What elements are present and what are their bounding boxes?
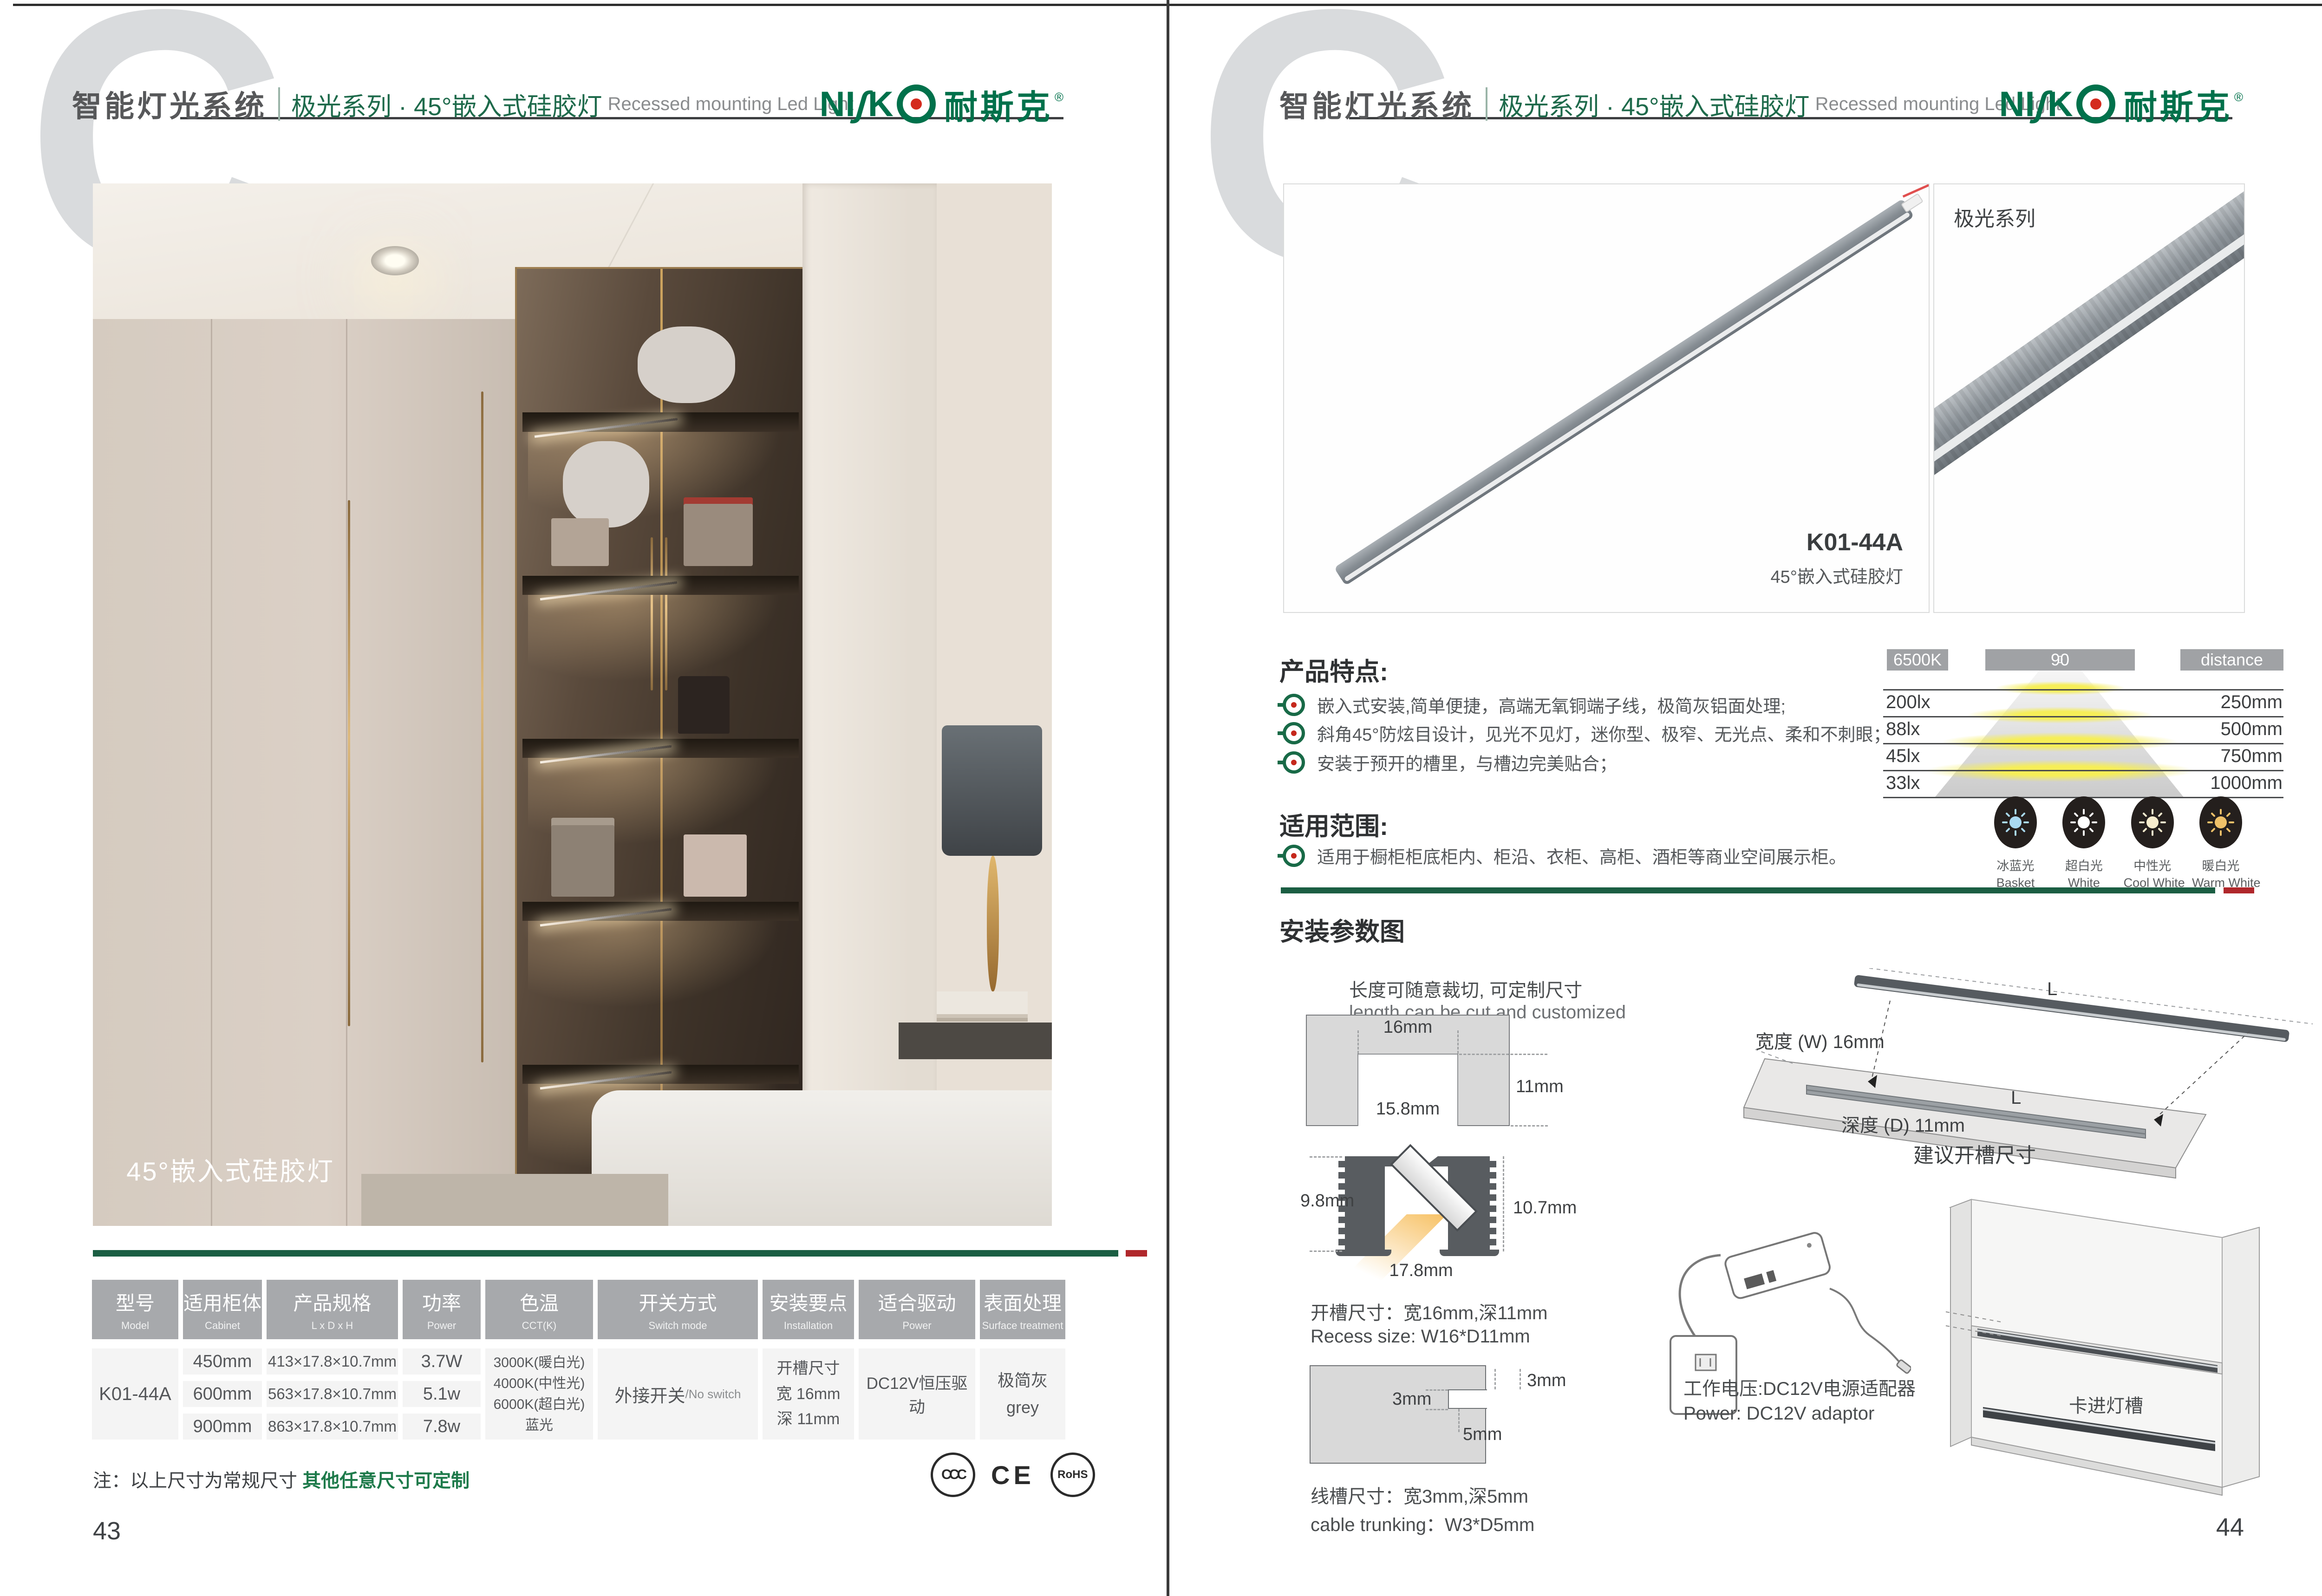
scope-item: 适用于橱柜柜底柜内、柜沿、衣柜、高柜、酒柜等商业空间展示柜。 bbox=[1283, 843, 1846, 868]
photo-gold-handle bbox=[481, 391, 483, 1062]
photo-bench bbox=[361, 1174, 668, 1226]
trunking-size-en: cable trunking：W3*D5mm bbox=[1311, 1510, 1534, 1537]
th-cn: 产品规格 bbox=[293, 1288, 371, 1316]
trunking-size-cn: 线槽尺寸：宽3mm,深5mm bbox=[1311, 1481, 1528, 1508]
photo-lamp-stem bbox=[987, 856, 999, 991]
dim-line bbox=[1458, 1409, 1460, 1432]
cct-swatches: 冰蓝光 Basket 超白光 White bbox=[1987, 796, 2250, 890]
photo-pillow bbox=[563, 441, 649, 528]
table-header-power: 功率Power bbox=[403, 1280, 481, 1339]
swatch-label-en: Cool White bbox=[2124, 876, 2181, 890]
scope-text: 适用于橱柜柜底柜内、柜沿、衣柜、高柜、酒柜等商业空间展示柜。 bbox=[1317, 843, 1846, 868]
photo-nightstand bbox=[899, 1023, 1052, 1059]
bullet-dot bbox=[1291, 760, 1297, 765]
board-depth-label: 深度 (D) 11mm bbox=[1841, 1115, 1965, 1136]
page-title-system: 智能灯光系统 bbox=[72, 83, 267, 125]
photo-glass-cabinet bbox=[515, 267, 807, 1226]
series-tag: 极光系列 bbox=[1954, 202, 2035, 232]
feature-item: 嵌入式安装,简单便捷，高端无氧铜端子线，极简灰铝面处理; bbox=[1283, 692, 1786, 717]
chart-line bbox=[1883, 716, 2283, 717]
page-gutter-line bbox=[1167, 0, 1169, 1596]
chart-line bbox=[1883, 689, 2283, 691]
groove-section-diagram: 16mm 11mm 15.8mm bbox=[1306, 1015, 1566, 1131]
product-panel-main: K01-44A 45°嵌入式硅胶灯 bbox=[1283, 183, 1930, 613]
light-pool bbox=[1942, 732, 2179, 752]
logo-ni: NI bbox=[820, 84, 856, 124]
switch-en: /No switch bbox=[685, 1387, 741, 1401]
cell-cabinet: 900mm bbox=[183, 1414, 262, 1440]
lux-label: 45lx bbox=[1886, 746, 1920, 767]
inst-line: 深 11mm bbox=[777, 1407, 840, 1432]
logo-ni: NI bbox=[1999, 84, 2035, 124]
light-distance-chart: 6500K 900 distance 200lx 88lx 45lx 33lx … bbox=[1883, 649, 2283, 802]
lux-label: 200lx bbox=[1886, 692, 1931, 713]
distance-label: 250mm bbox=[2221, 692, 2283, 713]
distance-label: 1000mm bbox=[2210, 773, 2283, 794]
bullet-icon bbox=[1283, 751, 1305, 774]
cell-power-col: 3.7W 5.1w 7.8w bbox=[403, 1348, 481, 1440]
dim-line bbox=[1459, 1054, 1547, 1055]
cell-spec: 863×17.8×10.7mm bbox=[267, 1414, 398, 1440]
photo-shelf-glow bbox=[528, 921, 793, 1007]
feature-text: 安装于预开的槽里，与槽边完美贴合； bbox=[1317, 749, 1617, 775]
note-prefix: 注：以上尺寸为常规尺寸 bbox=[93, 1471, 302, 1491]
table-header-cabinet: 适用柜体Cabinet bbox=[183, 1280, 262, 1339]
cct-line: 4000K(中性光) bbox=[494, 1373, 585, 1394]
ce-mark-icon: CE bbox=[991, 1460, 1035, 1490]
bullet-icon bbox=[1283, 694, 1305, 716]
led-bar-above-board bbox=[1854, 975, 2290, 1042]
photo-door-seam bbox=[211, 319, 212, 1226]
swatch-label-en: White bbox=[2055, 876, 2113, 890]
cct-line: 6000K(超白光) bbox=[494, 1394, 585, 1415]
inst-line: 开槽尺寸 bbox=[777, 1356, 840, 1381]
swatch-label-en: Basket bbox=[1987, 876, 2044, 890]
led-profile-closeup bbox=[1933, 183, 2245, 513]
photo-caption: 45°嵌入式硅胶灯 bbox=[126, 1151, 334, 1188]
profile-foot bbox=[1336, 1250, 1391, 1256]
swatch-label-en: Warm White bbox=[2192, 876, 2250, 890]
cut-note-cn: 长度可随意裁切, 可定制尺寸 bbox=[1349, 975, 1582, 1002]
swatch-oval bbox=[1994, 796, 2037, 848]
wall-plug bbox=[1696, 1355, 1716, 1370]
photo-wardrobe-doors bbox=[93, 319, 515, 1226]
surface-en: grey bbox=[1006, 1394, 1039, 1421]
th-en: Power bbox=[902, 1320, 931, 1332]
title-separator bbox=[278, 87, 280, 121]
cell-cct: 3000K(暖白光) 4000K(中性光) 6000K(超白光) 蓝光 bbox=[485, 1348, 593, 1440]
bar-length-label: L bbox=[2047, 979, 2057, 999]
angle-sup: 0 bbox=[2057, 654, 2063, 666]
cell-cabinet: 600mm bbox=[183, 1381, 262, 1407]
th-en: Surface treatment bbox=[982, 1320, 1063, 1332]
nisko-logo: NIʃK 耐斯克 ® bbox=[1999, 78, 2243, 130]
cell-spec: 413×17.8×10.7mm bbox=[267, 1348, 398, 1375]
th-cn: 适合驱动 bbox=[878, 1288, 956, 1316]
product-panel-closeup: 极光系列 bbox=[1933, 183, 2245, 613]
page-title-system: 智能灯光系统 bbox=[1279, 83, 1474, 125]
ccc-mark-icon: CCC bbox=[931, 1453, 975, 1497]
chart-header-cct: 6500K bbox=[1887, 649, 1948, 671]
sun-icon bbox=[2070, 809, 2097, 836]
distance-label: 500mm bbox=[2221, 719, 2283, 740]
photo-lamp-shade bbox=[942, 725, 1043, 856]
profile-teeth bbox=[1490, 1161, 1496, 1249]
groove-length-label: L bbox=[2011, 1088, 2021, 1108]
cell-spec: 563×17.8×10.7mm bbox=[267, 1381, 398, 1407]
dim-right-height: 10.7mm bbox=[1513, 1198, 1577, 1218]
registered-mark: ® bbox=[2234, 90, 2243, 104]
surface-cn: 极简灰 bbox=[998, 1367, 1048, 1394]
table-header-switch: 开关方式Switch mode bbox=[598, 1280, 758, 1339]
cell-driver: DC12V恒压驱动 bbox=[859, 1348, 975, 1440]
th-en: Installation bbox=[784, 1320, 833, 1332]
photo-folded-clothes bbox=[684, 834, 747, 897]
board-groove-diagram: L 宽度 (W) 16mm L 深度 (D) 11mm 建议开槽尺寸 bbox=[1737, 968, 2322, 1186]
table-header-spec: 产品规格L x D x H bbox=[267, 1280, 398, 1339]
swatch-oval bbox=[2131, 796, 2174, 848]
swatch-label-cn: 冰蓝光 bbox=[1987, 856, 2044, 874]
bullet-dot bbox=[1291, 702, 1297, 708]
board-width-label: 宽度 (W) 16mm bbox=[1755, 1032, 1885, 1052]
lux-label: 88lx bbox=[1886, 719, 1920, 740]
th-en: CCT(K) bbox=[522, 1320, 557, 1332]
registered-mark: ® bbox=[1055, 90, 1063, 104]
trunk-slot bbox=[1448, 1389, 1487, 1409]
header-left-page: 智能灯光系统 极光系列 · 45°嵌入式硅胶灯 Recessed mountin… bbox=[72, 78, 1063, 130]
feature-item: 斜角45°防炫目设计，见光不见灯，迷你型、极窄、无光点、柔和不刺眼； bbox=[1283, 720, 1891, 746]
certification-marks: CCC CE RoHS bbox=[931, 1453, 1095, 1497]
product-model: K01-44A bbox=[1807, 528, 1903, 556]
dim-slot-width: 3mm bbox=[1527, 1371, 1566, 1391]
divider-left-green bbox=[93, 1250, 1118, 1257]
guide-line bbox=[2157, 1031, 2250, 1117]
dim-line bbox=[1310, 1251, 1342, 1252]
swatch-oval bbox=[2199, 796, 2242, 848]
table-header-model: 型号Model bbox=[92, 1280, 178, 1339]
th-en: Power bbox=[427, 1320, 456, 1332]
dim-top-width: 16mm bbox=[1357, 1017, 1458, 1037]
page-title-series: 极光系列 · 45°嵌入式硅胶灯 bbox=[291, 86, 602, 123]
nisko-logo-cn: 耐斯克 bbox=[944, 80, 1053, 129]
photo-downlight bbox=[371, 246, 419, 275]
bullet-icon bbox=[1283, 722, 1305, 744]
cell-cabinet-col: 450mm 600mm 900mm bbox=[183, 1348, 262, 1440]
led-profile-drawing bbox=[1334, 199, 1914, 586]
profile-foot bbox=[1440, 1250, 1499, 1256]
nisko-logo-latin: NIʃK bbox=[1999, 84, 2117, 124]
sun-icon bbox=[2207, 809, 2234, 836]
chart-header-distance: distance bbox=[2180, 649, 2283, 671]
logo-red-dot bbox=[911, 98, 922, 110]
swatch-white: 超白光 White bbox=[2055, 796, 2113, 890]
photo-towel-stack bbox=[551, 825, 614, 897]
photo-books bbox=[937, 991, 1028, 1014]
cell-power: 5.1w bbox=[403, 1381, 481, 1407]
photo-folded-clothes bbox=[551, 518, 609, 566]
clip-into-slot-label: 卡进灯槽 bbox=[2069, 1391, 2143, 1418]
switch-cn: 外接开关 bbox=[615, 1381, 685, 1407]
table-header-surface: 表面处理Surface treatment bbox=[980, 1280, 1065, 1339]
distance-label: 750mm bbox=[2221, 746, 2283, 767]
divider-left-red bbox=[1126, 1250, 1147, 1257]
note-highlight: 其他任意尺寸可定制 bbox=[302, 1471, 470, 1491]
th-cn: 表面处理 bbox=[984, 1288, 1062, 1316]
chart-line bbox=[1883, 770, 2283, 771]
chart-header-angle: 900 bbox=[1985, 649, 2135, 671]
bullet-dot bbox=[1291, 730, 1297, 736]
swatch-oval bbox=[2062, 796, 2105, 848]
th-en: Cabinet bbox=[205, 1320, 240, 1332]
page-title-english: Recessed mounting Led Light bbox=[608, 94, 854, 115]
bullet-dot bbox=[1291, 853, 1297, 859]
bullet-icon bbox=[1283, 845, 1305, 867]
photo-folded-clothes bbox=[684, 504, 753, 566]
table-header-driver: 适合驱动Power bbox=[859, 1280, 975, 1339]
logo-red-dot bbox=[2090, 98, 2101, 110]
feature-text: 嵌入式安装,简单便捷，高端无氧铜端子线，极简灰铝面处理; bbox=[1317, 692, 1786, 717]
th-cn: 安装要点 bbox=[769, 1288, 847, 1316]
photo-pillow bbox=[638, 326, 736, 403]
trunk-block bbox=[1310, 1365, 1486, 1464]
product-name: 45°嵌入式硅胶灯 bbox=[1771, 562, 1903, 588]
dim-line bbox=[1310, 1156, 1342, 1158]
table-header-installation: 安装要点Installation bbox=[763, 1280, 854, 1339]
dim-depth: 11mm bbox=[1516, 1077, 1564, 1097]
cabinet-right-wall bbox=[2222, 1227, 2259, 1487]
swatch-ice-blue: 冰蓝光 Basket bbox=[1987, 796, 2044, 890]
th-cn: 开关方式 bbox=[639, 1288, 717, 1316]
th-en: Switch mode bbox=[649, 1320, 707, 1332]
photo-handbag bbox=[678, 676, 730, 734]
photo-right-wall bbox=[937, 183, 1052, 1226]
swatch-warm-white: 暖白光 Warm White bbox=[2192, 796, 2250, 890]
dim-line bbox=[1511, 1125, 1548, 1127]
logo-o-mark-icon bbox=[2076, 85, 2115, 124]
swatch-label-cn: 中性光 bbox=[2124, 856, 2181, 874]
nisko-logo: NIʃK 耐斯克 ® bbox=[820, 78, 1063, 130]
swatch-cool-white: 中性光 Cool White bbox=[2124, 796, 2181, 890]
cell-cabinet: 450mm bbox=[183, 1348, 262, 1375]
cabinet-left-stile bbox=[1950, 1199, 1971, 1446]
dim-slot-height: 3mm bbox=[1392, 1389, 1431, 1409]
catalog-spread: C C 智能灯光系统 极光系列 · 45°嵌入式硅胶灯 Recessed mou… bbox=[0, 0, 2322, 1596]
th-en: Model bbox=[121, 1320, 149, 1332]
power-voltage-en: Power: DC12V adaptor bbox=[1683, 1403, 1874, 1424]
photo-wall-column bbox=[802, 183, 937, 1226]
th-cn: 功率 bbox=[422, 1288, 461, 1316]
lux-label: 33lx bbox=[1886, 773, 1920, 794]
recess-size-cn: 开槽尺寸：宽16mm,深11mm bbox=[1311, 1298, 1547, 1325]
inst-line: 宽 16mm bbox=[776, 1381, 841, 1407]
swatch-label-cn: 超白光 bbox=[2055, 856, 2113, 874]
profile-top-flange bbox=[1425, 1156, 1490, 1166]
adaptor-body bbox=[1724, 1231, 1832, 1300]
light-pool bbox=[1995, 681, 2125, 695]
cell-spec-col: 413×17.8×10.7mm 563×17.8×10.7mm 863×17.8… bbox=[267, 1348, 398, 1440]
wire-connector bbox=[1896, 1359, 1911, 1374]
features-title: 产品特点: bbox=[1279, 651, 1388, 688]
output-wire bbox=[1830, 1289, 1904, 1368]
feature-item: 安装于预开的槽里，与槽边完美贴合； bbox=[1283, 749, 1617, 775]
cell-installation: 开槽尺寸 宽 16mm 深 11mm bbox=[763, 1348, 854, 1440]
board-caption: 建议开槽尺寸 bbox=[1913, 1144, 2036, 1167]
scope-title: 适用范围: bbox=[1279, 806, 1388, 842]
header-right-page: 智能灯光系统 极光系列 · 45°嵌入式硅胶灯 Recessed mountin… bbox=[1279, 78, 2243, 130]
page-number-left: 43 bbox=[93, 1517, 121, 1545]
wardrobe-photo: 45°嵌入式硅胶灯 bbox=[93, 183, 1052, 1226]
page-title-series: 极光系列 · 45°嵌入式硅胶灯 bbox=[1499, 86, 1810, 123]
cabinet-install-drawing bbox=[1918, 1173, 2271, 1498]
th-cn: 型号 bbox=[116, 1288, 155, 1316]
dim-inner-width: 15.8mm bbox=[1357, 1099, 1458, 1119]
table-note: 注：以上尺寸为常规尺寸 其他任意尺寸可定制 bbox=[93, 1466, 470, 1492]
photo-gold-handle bbox=[348, 500, 350, 1026]
swatch-label-cn: 暖白光 bbox=[2192, 856, 2250, 874]
spec-table: 型号Model 适用柜体Cabinet 产品规格L x D x H 功率Powe… bbox=[92, 1280, 1065, 1440]
rohs-mark-icon: RoHS bbox=[1050, 1453, 1095, 1497]
cell-power: 7.8w bbox=[403, 1414, 481, 1440]
title-separator bbox=[1486, 87, 1487, 121]
dim-left-height: 9.8mm bbox=[1300, 1191, 1354, 1211]
photo-shelf-glow bbox=[528, 595, 793, 681]
table-header-cct: 色温CCT(K) bbox=[485, 1280, 593, 1339]
cct-line: 蓝光 bbox=[525, 1415, 553, 1436]
led-profile-diffuser bbox=[1344, 212, 1911, 582]
cable-trunking-diagram: 3mm 3mm 5mm bbox=[1310, 1361, 1579, 1474]
recess-size-en: Recess size: W16*D11mm bbox=[1311, 1326, 1530, 1347]
profile-section-diagram: 9.8mm 10.7mm 17.8mm bbox=[1300, 1145, 1570, 1284]
cct-line: 3000K(暖白光) bbox=[494, 1352, 585, 1373]
nisko-logo-latin: NIʃK bbox=[820, 84, 938, 124]
th-cn: 色温 bbox=[520, 1288, 559, 1316]
light-pool bbox=[1967, 707, 2153, 723]
nisko-logo-cn: 耐斯克 bbox=[2124, 80, 2232, 129]
feature-text: 斜角45°防炫目设计，见光不见灯，迷你型、极窄、无光点、柔和不刺眼； bbox=[1317, 720, 1891, 746]
sun-icon bbox=[2139, 809, 2166, 836]
logo-o-mark-icon bbox=[897, 85, 936, 124]
cell-surface: 极简灰 grey bbox=[980, 1348, 1065, 1440]
install-title: 安装参数图 bbox=[1279, 911, 1405, 948]
cell-switch: 外接开关 /No switch bbox=[598, 1348, 758, 1440]
dim-bottom-width: 17.8mm bbox=[1375, 1261, 1468, 1281]
th-cn: 适用柜体 bbox=[183, 1288, 261, 1316]
power-cord bbox=[1680, 1255, 1721, 1340]
cell-model: K01-44A bbox=[92, 1348, 178, 1440]
photo-door-seam bbox=[346, 319, 347, 1226]
cell-power: 3.7W bbox=[403, 1348, 481, 1375]
dim-slot-depth: 5mm bbox=[1463, 1425, 1502, 1445]
dim-line bbox=[1520, 1369, 1521, 1389]
dim-line bbox=[1503, 1156, 1504, 1251]
dim-line bbox=[1494, 1369, 1496, 1389]
sun-icon bbox=[2002, 809, 2029, 836]
page-number-right: 44 bbox=[2202, 1513, 2244, 1542]
chart-line bbox=[1883, 743, 2283, 744]
th-en: L x D x H bbox=[312, 1320, 353, 1332]
power-voltage-cn: 工作电压:DC12V电源适配器 bbox=[1683, 1374, 1916, 1401]
